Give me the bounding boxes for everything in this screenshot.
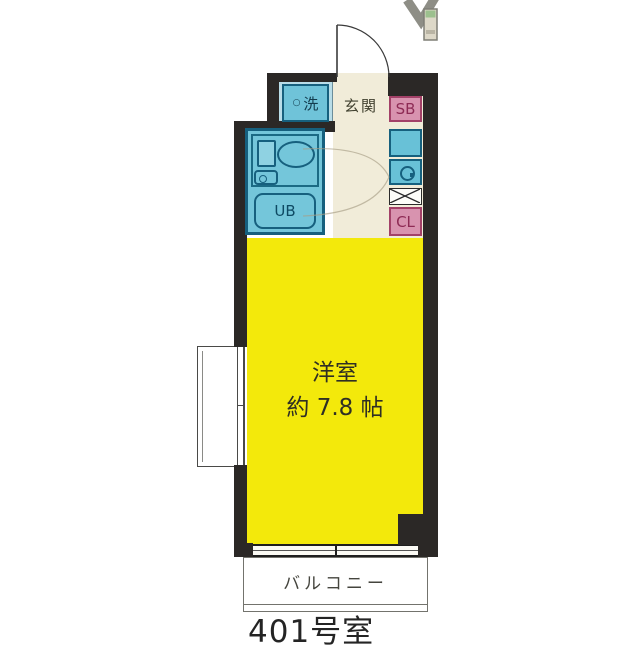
toilet-bowl — [277, 141, 315, 168]
wall-bottom-right — [418, 543, 438, 557]
bay-window-sash-divider — [237, 405, 244, 406]
bay-window-glass-line — [243, 347, 244, 466]
kitchen-stove — [389, 159, 422, 185]
balcony-edge-line — [243, 604, 428, 605]
cropped-photo-fragment — [403, 0, 451, 46]
washing-machine-space: ○ 洗 — [282, 84, 329, 122]
unit-bath: UB — [245, 128, 325, 235]
shoe-box: SB — [389, 96, 422, 122]
wall-right — [423, 95, 438, 557]
entrance-door-opening — [337, 73, 388, 82]
unit-bath-label: UB — [274, 202, 295, 220]
kitchen-sink — [389, 129, 422, 157]
floorplan-canvas: 洋室 約 7.8 帖 バルコニー 401号室 ○ 洗 玄関 SB — [0, 0, 640, 640]
balcony-door-mullion — [335, 544, 337, 557]
main-room-label: 洋室 約 7.8 帖 — [247, 356, 423, 426]
refrigerator-space — [389, 188, 422, 205]
bathtub: UB — [254, 193, 316, 229]
laundry-label: 洗 — [303, 93, 318, 114]
sink-drain-icon — [259, 175, 267, 183]
bay-window-inner-line — [202, 351, 203, 462]
main-room-size: 約 7.8 帖 — [247, 391, 423, 426]
room-number: 401号室 — [248, 606, 374, 651]
bay-window-glass-line — [237, 347, 238, 466]
toilet-tank — [257, 140, 276, 167]
stove-burner-knob — [410, 173, 414, 177]
bathroom-sink — [254, 170, 278, 185]
entrance-label: 玄関 — [344, 95, 378, 116]
laundry-tap-marker: ○ — [293, 98, 301, 108]
wall-bottom-left — [234, 543, 253, 557]
wall-top-right — [388, 73, 438, 96]
shoe-box-label: SB — [396, 100, 416, 118]
wall-pillar-bottom-right — [398, 514, 438, 545]
main-room-name: 洋室 — [247, 356, 423, 391]
closet: CL — [389, 207, 422, 236]
closet-label: CL — [396, 213, 415, 231]
